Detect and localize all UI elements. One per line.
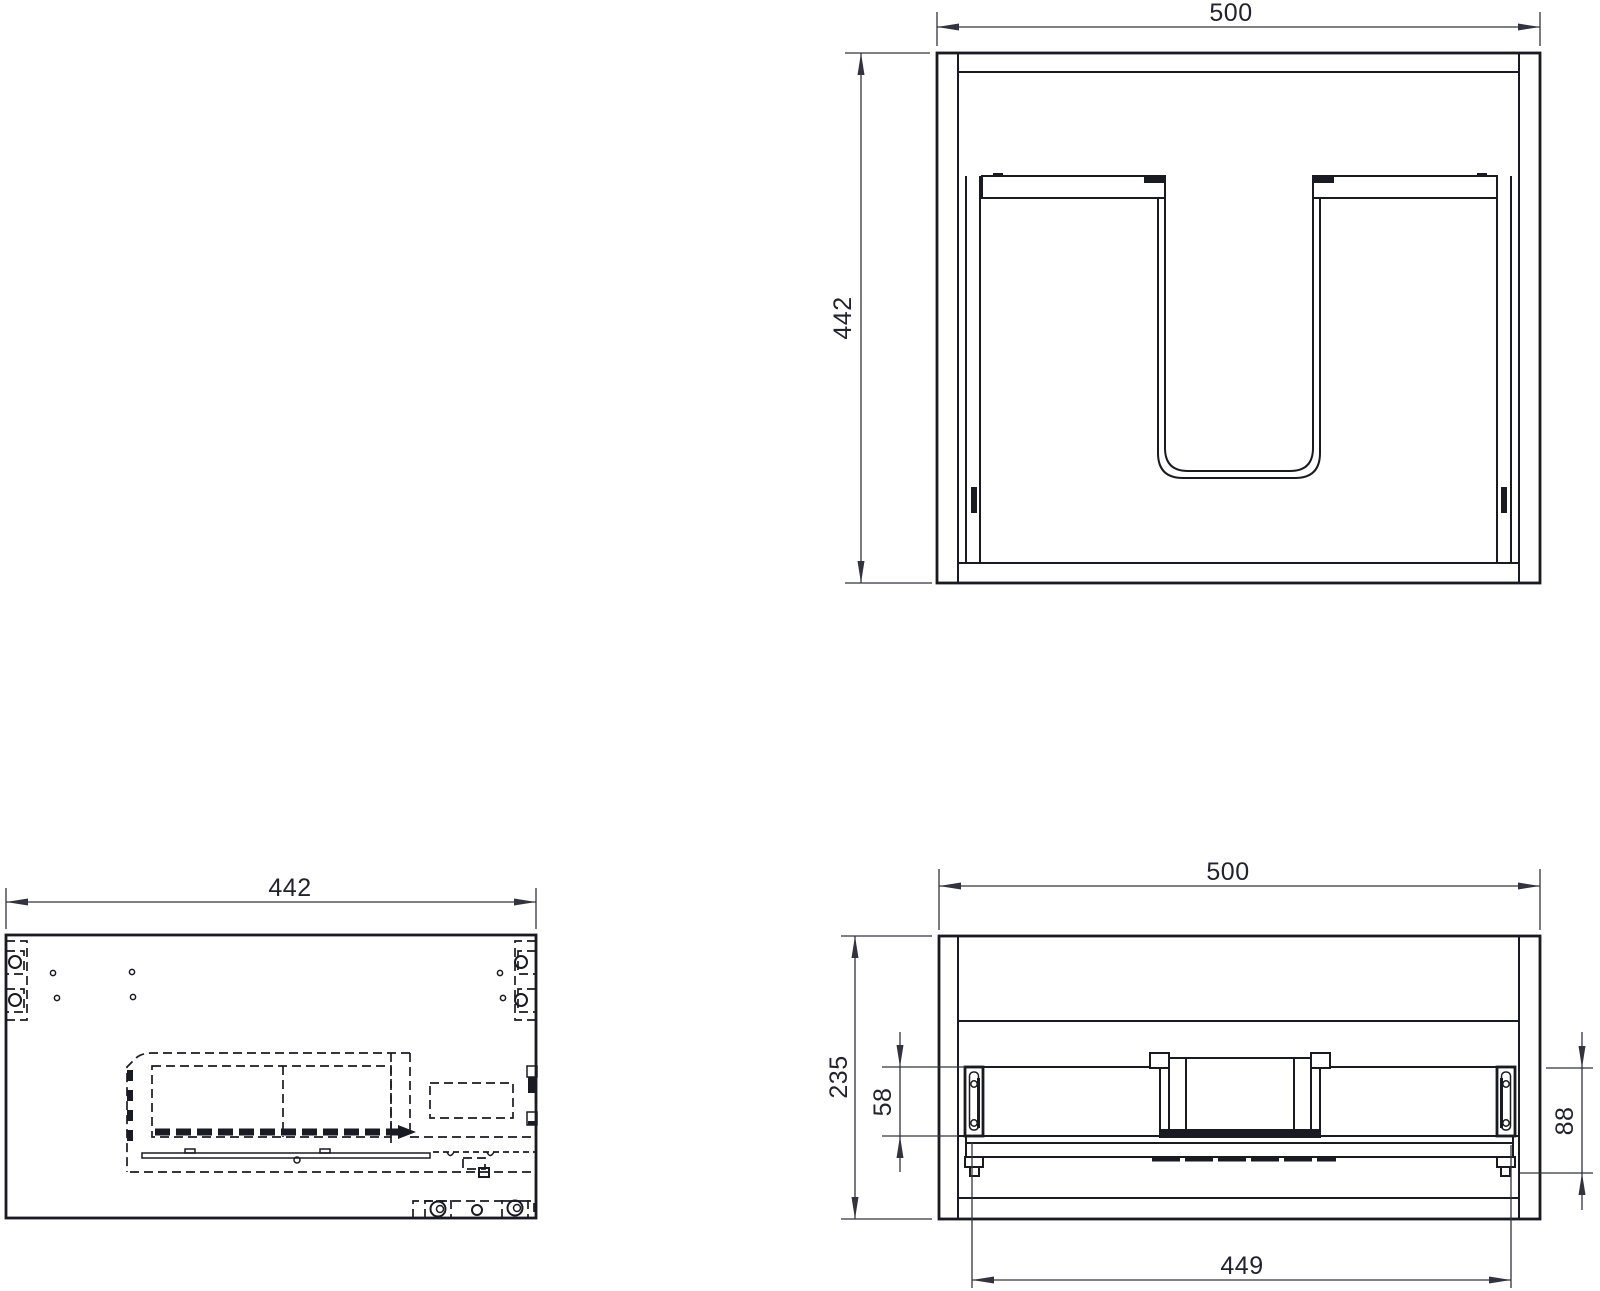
bracket-foot-right <box>1497 1157 1515 1176</box>
wall-bracket-right <box>1497 1067 1515 1136</box>
edge-fitting-dark <box>528 1077 536 1093</box>
rear-height-dimension: 442 <box>829 53 932 583</box>
side-wall-tick <box>971 487 977 513</box>
side-cabinet-outline <box>6 935 536 1218</box>
side-view: 442 <box>6 874 537 1218</box>
arrowhead <box>1579 1173 1586 1195</box>
arrowhead <box>852 1197 859 1219</box>
slide-outline <box>127 1053 410 1172</box>
right-drawer-rail <box>1313 176 1497 198</box>
wall-bracket-left <box>965 1067 983 1136</box>
runner-lug <box>320 1149 330 1153</box>
bracket-drop-dim: 88 <box>1551 1107 1579 1136</box>
arrowhead <box>852 936 859 958</box>
plan-width-dimension: 500 <box>939 858 1540 930</box>
interior-side-walls <box>966 176 1511 563</box>
arrowhead <box>897 1136 904 1158</box>
leveller-foot-inner <box>514 1205 521 1212</box>
plan-depth-dim: 235 <box>825 1055 853 1098</box>
leveller-strip <box>413 1201 534 1219</box>
arrowhead <box>937 24 959 31</box>
arrowhead <box>939 883 961 890</box>
trap-box-base <box>1159 1129 1321 1137</box>
rail-offset-dim: 58 <box>869 1088 897 1117</box>
rear-fixing-box <box>430 1083 513 1118</box>
rear-width-dimension: 500 <box>937 0 1540 46</box>
fixing-centres-dim: 449 <box>1220 1252 1263 1280</box>
clip-hooks <box>447 1152 494 1156</box>
arrowhead <box>514 899 536 906</box>
cabinet-drawing: 500 442 <box>0 0 1600 1291</box>
arrowhead <box>1518 24 1540 31</box>
arrowhead <box>1518 883 1540 890</box>
bottom-stretcher <box>966 1136 1513 1157</box>
leveller-foot-inner <box>437 1206 444 1213</box>
plan-view: 500 235 58 88 <box>825 858 1593 1288</box>
arrowhead <box>897 1045 904 1067</box>
rail-end-mark <box>1313 176 1334 183</box>
sink-trap-box <box>1150 1053 1330 1137</box>
rail-tick <box>1477 173 1487 177</box>
edge-fitting-mark <box>528 1121 536 1125</box>
runner-lug <box>185 1149 195 1153</box>
corner-plate-top-right <box>515 941 536 1020</box>
trap-box-body <box>1160 1058 1320 1137</box>
technical-drawing-sheet: 500 442 <box>0 0 1600 1291</box>
arrowhead <box>1579 1046 1586 1068</box>
side-wall-tick <box>1501 487 1507 513</box>
trap-box-ear-right <box>1311 1053 1330 1068</box>
plumbing-cutout-outer <box>1158 198 1320 478</box>
rail-end-mark <box>1144 176 1165 183</box>
rear-cabinet-outline <box>937 53 1540 583</box>
arrowhead <box>6 899 28 906</box>
arrowhead <box>972 1277 994 1284</box>
plan-width-dim: 500 <box>1206 858 1249 886</box>
screw-marks <box>50 969 505 1000</box>
rear-elevation-view: 500 442 <box>829 0 1540 583</box>
plan-depth-dimension: 235 <box>825 936 932 1219</box>
extension-lines <box>845 53 932 583</box>
fixing-centres-dimension: 449 <box>972 1142 1511 1288</box>
left-drawer-rail <box>982 176 1165 198</box>
rail-offset-dimension: 58 <box>869 1032 965 1172</box>
drawer-slide-assembly <box>127 1053 537 1177</box>
bracket-foot-left <box>965 1157 983 1176</box>
corner-plate-top-left <box>6 941 27 1020</box>
rear-width-dim: 500 <box>1209 0 1252 27</box>
fixing-hole <box>472 1205 482 1215</box>
side-length-dim: 442 <box>268 874 311 902</box>
plumbing-cutout-inner <box>1165 198 1313 471</box>
rear-panel-lines <box>958 53 1519 583</box>
arrowhead <box>858 561 865 583</box>
arrowhead <box>858 53 865 75</box>
rail-tick <box>993 173 1003 177</box>
arrowhead <box>1489 1277 1511 1284</box>
trap-box-ear-left <box>1150 1053 1169 1068</box>
drawer-body-hidden <box>152 1066 391 1137</box>
rear-height-dim: 442 <box>829 296 857 339</box>
bracket-drop-dimension: 88 <box>1520 1032 1593 1210</box>
side-length-dimension: 442 <box>6 874 536 929</box>
